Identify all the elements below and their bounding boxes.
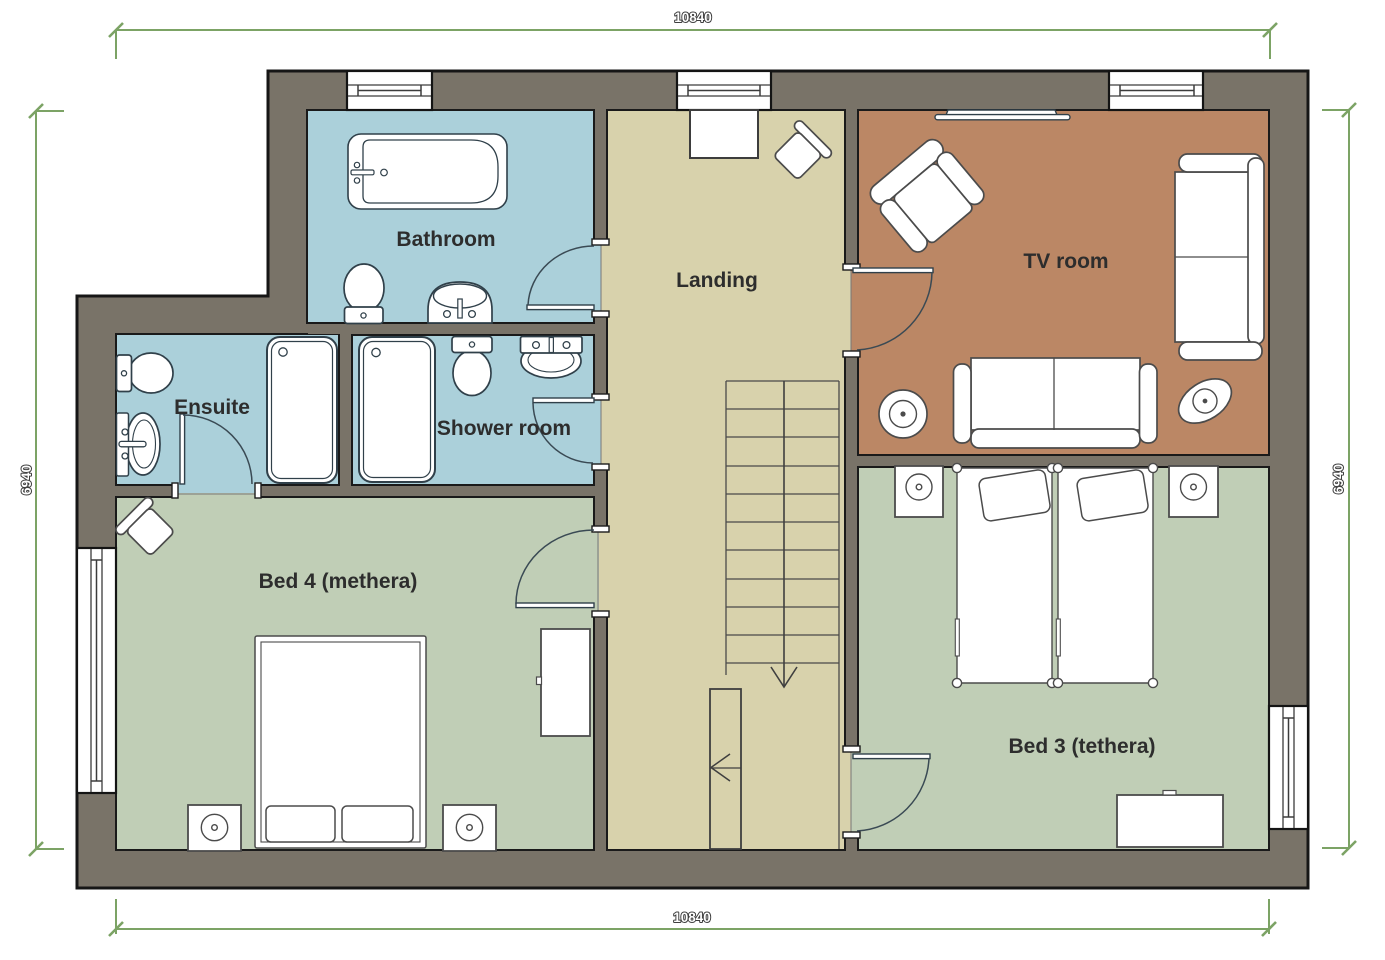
svg-text:TV room: TV room	[1023, 250, 1108, 273]
svg-text:10840: 10840	[674, 10, 712, 25]
svg-text:Ensuite: Ensuite	[174, 396, 250, 419]
svg-text:Shower room: Shower room	[437, 417, 571, 440]
svg-text:Landing: Landing	[676, 269, 758, 292]
svg-text:6940: 6940	[1331, 464, 1346, 494]
svg-text:10840: 10840	[673, 910, 711, 925]
svg-text:Bathroom: Bathroom	[396, 228, 495, 251]
svg-text:Bed 3 (tethera): Bed 3 (tethera)	[1008, 735, 1155, 758]
svg-text:Bed 4 (methera): Bed 4 (methera)	[259, 570, 418, 593]
svg-text:6940: 6940	[19, 465, 34, 495]
